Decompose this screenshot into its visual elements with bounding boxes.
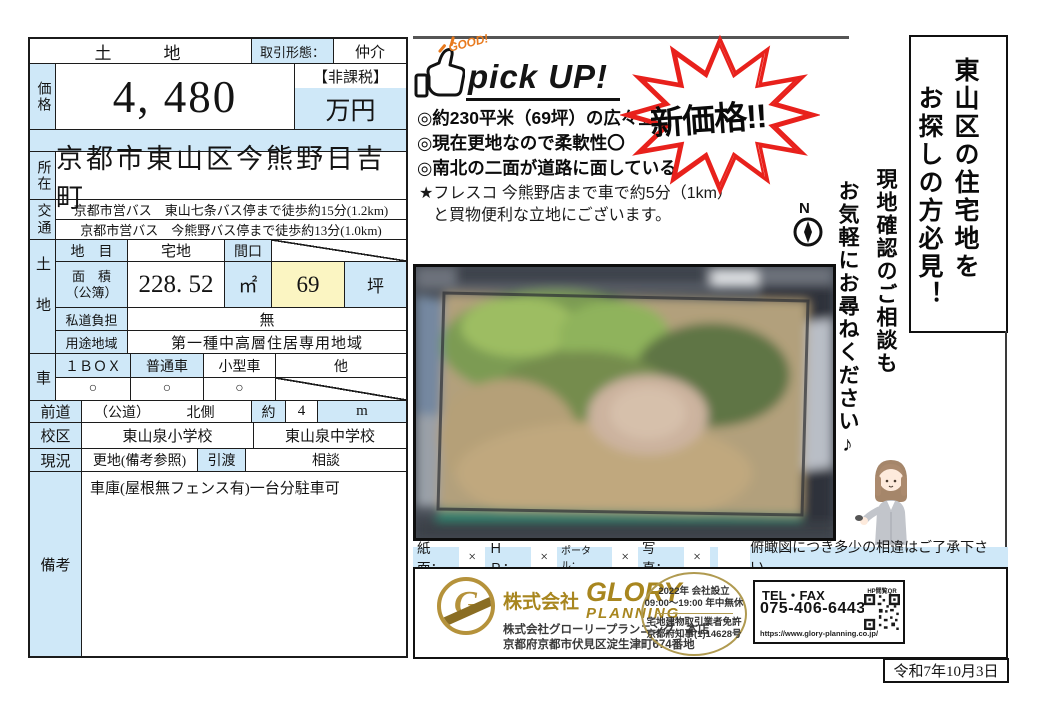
handover-value: 相談 [246,449,406,471]
banner-line-2: お探しの方必見！ [911,85,947,331]
car-mark-other-empty [276,378,406,400]
company-prefix: 株式会社 [503,587,579,614]
tsubo-unit: 坪 [345,262,406,307]
consult-line-1: 現地確認のご相談も [870,168,900,486]
banner-line-1: 東山区の住宅地を [947,57,983,331]
consult-note: 現地確認のご相談も お気軽にお尋ねください♪ [832,166,900,486]
oval-founded: 2022年 会社設立 [643,586,745,598]
car-col-kogata: 小型車 [204,354,276,377]
row-car: 車 １ＢＯＸ 普通車 小型車 他 ○ ○ ○ [30,354,406,401]
road-approx: 約 [252,401,286,422]
disclaimer-bar: 紙面： × ＨＰ： × ポータル： × 写真： × 俯瞰図につき多少の相違はご了… [413,547,1008,567]
m2-unit: ㎡ [225,262,272,307]
car-col-1box: １ＢＯＸ [56,354,131,377]
compass-north-label: N [799,200,810,217]
location-value: 京都市東山区今熊野日吉町 [56,152,406,199]
road-unit: m [318,401,406,422]
car-mark-2: ○ [131,378,204,400]
company-url: https://www.glory-planning.co.jp/ [760,629,878,638]
frontage-empty [272,240,406,261]
consult-line-2: お気軽にお尋ねください♪ [832,180,862,486]
school-elementary: 東山泉小学校 [82,423,254,448]
good-label: GOOD! [447,31,490,54]
disclaimer-mark-2: × [531,547,557,567]
status-value: 更地(備考参照) [82,449,198,471]
row-access: 交通 京都市営バス 東山七条バス停まで徒歩約15分(1.2km) 京都市営バス … [30,200,406,240]
license-oval: 2022年 会社設立 09:00～19:00 年中無休 宅地建物取引業者免許 京… [641,572,747,656]
access-line-2: 京都市営バス 今熊野バス停まで徒歩約13分(1.0km) [56,220,406,239]
tax-note: 【非課税】 [295,64,406,88]
property-type: 土 地 [30,39,252,63]
handover-label: 引渡 [198,449,246,471]
row-school: 校区 東山泉小学校 東山泉中学校 [30,423,406,449]
oval-divider [655,613,733,614]
road-side: 北側 [187,402,215,422]
school-label: 校区 [30,423,82,448]
oval-license-number: 京都府知事(1)14628号 [643,629,745,641]
school-junior-high: 東山泉中学校 [254,423,406,448]
right-edge-line [1005,331,1007,548]
row-status: 現況 更地(備考参照) 引渡 相談 [30,449,406,472]
area-tsubo-value: 69 [272,262,345,307]
row-price: 価格 4, 480 【非課税】 万円 [30,64,406,130]
row-remarks: 備考 車庫(屋根無フェンス有)一台分駐車可 [30,472,406,656]
qr-code-icon [864,594,900,630]
area-m2-value: 228. 52 [128,262,225,307]
road-width: 4 [286,401,318,422]
tel-box: TEL・FAX 075-406-6443 https://www.glory-p… [753,580,905,644]
car-mark-1: ○ [56,378,131,400]
banner-box: 東山区の住宅地を お探しの方必見！ [909,35,1008,333]
pickup-title: pick UP! [466,58,620,101]
private-road-label: 私道負担 [56,308,128,330]
row-road: 前道 （公道） 北側 約 4 m [30,401,406,423]
road-kind: （公道） [94,402,150,422]
deal-type-label: 取引形態： [252,39,334,63]
land-label: 土地 [30,240,56,353]
property-spec-table: 土 地 取引形態： 仲介 価格 4, 480 【非課税】 万円 所在 京都市東山… [28,37,408,658]
zoning-value: 第一種中高層住居専用地域 [128,331,406,353]
price-value: 4, 480 [56,64,295,129]
price-label: 価格 [30,64,56,129]
status-label: 現況 [30,449,82,471]
price-unit-block: 【非課税】 万円 [295,64,406,129]
row-header: 土 地 取引形態： 仲介 [30,39,406,64]
new-price-label: 新価格!! [648,89,767,145]
compass-icon [792,216,824,248]
deal-type-value: 仲介 [334,39,406,63]
tel-number: 075-406-6443 [760,600,866,618]
flyer-page: 土 地 取引形態： 仲介 価格 4, 480 【非課税】 万円 所在 京都市東山… [0,0,1040,720]
road-kind-side: （公道） 北側 [82,401,252,422]
flyer-date: 令和7年10月3日 [893,660,998,681]
disclaimer-mark-3: × [612,547,638,567]
disclaimer-spacer [718,547,750,567]
car-col-futsu: 普通車 [131,354,204,377]
row-land: 土地 地 目 宅地 間口 面 積 （公簿） 228. 52 ㎡ 69 坪 [30,240,406,354]
company-box: G 株式会社 GLORY PLANNING 株式会社グローリープランニング 本店… [413,567,1008,659]
access-line-1: 京都市営バス 東山七条バス停まで徒歩約15分(1.2km) [56,200,406,220]
area-label: 面 積 （公簿） [56,262,128,307]
disclaimer-mark-4: × [684,547,710,567]
land-category-value: 宅地 [128,240,225,261]
private-road-value: 無 [128,308,406,330]
oval-hours: 09:00～19:00 年中無休 [643,598,745,610]
remarks-label: 備考 [30,472,82,656]
aerial-photo [413,264,836,541]
pickup-note-line2: と買物便利な立地にございます。 [419,205,733,227]
access-label: 交通 [30,200,56,239]
glory-logo: G [437,577,495,635]
car-label: 車 [30,354,56,400]
price-unit: 万円 [295,88,406,129]
oval-license-type: 宅地建物取引業者免許 [643,617,745,629]
frontage-label: 間口 [225,240,272,261]
row-location: 所在 京都市東山区今熊野日吉町 [30,152,406,200]
car-mark-3: ○ [204,378,276,400]
car-col-other: 他 [276,354,406,377]
disclaimer-mark-1: × [459,547,485,567]
land-category-label: 地 目 [56,240,128,261]
location-label: 所在 [30,152,56,199]
remarks-value: 車庫(屋根無フェンス有)一台分駐車可 [82,472,406,656]
zoning-label: 用途地域 [56,331,128,353]
woman-illustration [855,452,927,547]
date-box: 令和7年10月3日 [883,658,1009,683]
road-label: 前道 [30,401,82,422]
